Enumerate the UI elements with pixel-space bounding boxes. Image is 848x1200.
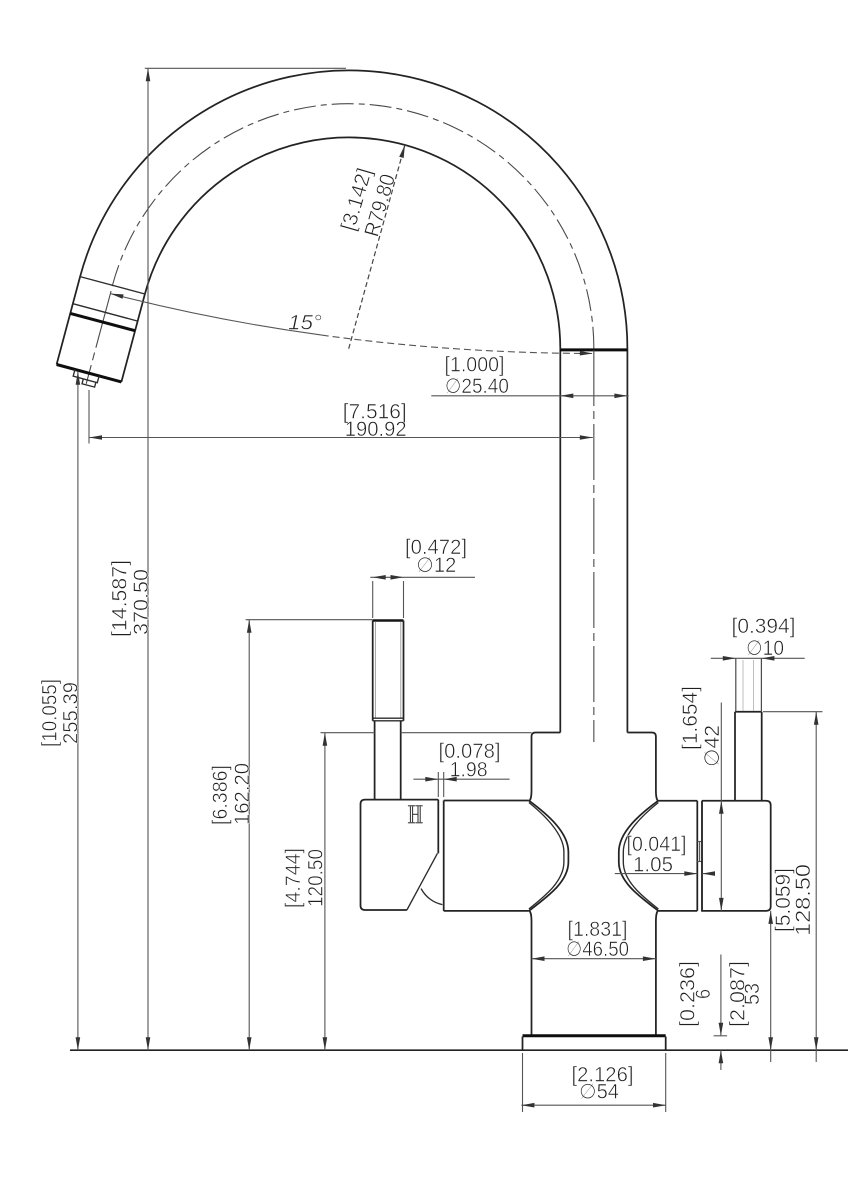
svg-text:128.50: 128.50: [792, 864, 815, 936]
svg-text:∅46.50: ∅46.50: [566, 938, 629, 961]
svg-text:1.98: 1.98: [450, 759, 488, 782]
svg-text:∅42: ∅42: [701, 725, 724, 767]
svg-text:[1.000]: [1.000]: [445, 354, 505, 377]
svg-text:6: 6: [692, 989, 715, 999]
svg-text:[1.654]: [1.654]: [679, 686, 702, 750]
svg-text:[0.394]: [0.394]: [732, 615, 796, 638]
svg-text:53: 53: [741, 983, 764, 1005]
svg-text:[4.744]: [4.744]: [282, 848, 305, 908]
svg-text:120.50: 120.50: [305, 849, 328, 907]
svg-text:[10.055]: [10.055]: [39, 679, 62, 747]
svg-text:[6.386]: [6.386]: [209, 765, 232, 825]
svg-text:∅54: ∅54: [579, 1081, 619, 1104]
svg-text:162.20: 162.20: [231, 763, 254, 825]
svg-text:370.50: 370.50: [130, 569, 153, 635]
svg-text:255.39: 255.39: [60, 682, 83, 744]
svg-text:∅12: ∅12: [416, 554, 456, 577]
svg-text:1.05: 1.05: [633, 854, 673, 877]
svg-text:∅25.40: ∅25.40: [445, 375, 509, 398]
svg-text:∅10: ∅10: [746, 637, 784, 660]
svg-text:190.92: 190.92: [345, 418, 407, 441]
svg-text:[14.587]: [14.587]: [109, 560, 132, 637]
svg-text:15°: 15°: [288, 312, 322, 335]
